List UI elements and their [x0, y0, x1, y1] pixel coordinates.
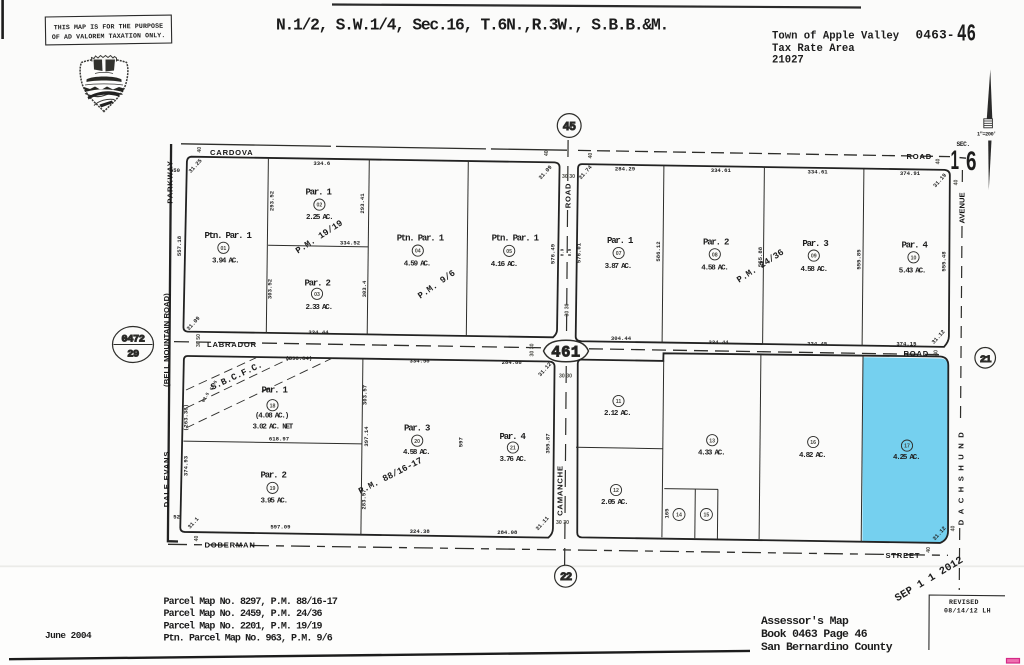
svg-text:DACHSHUND: DACHSHUND: [956, 427, 965, 525]
svg-text:03: 03: [314, 292, 320, 298]
svg-text:June 2004: June 2004: [45, 630, 92, 641]
svg-text:5.43 AC.: 5.43 AC.: [899, 267, 925, 275]
svg-text:334.44: 334.44: [709, 339, 730, 346]
svg-text:52: 52: [173, 514, 180, 521]
svg-text:40: 40: [935, 159, 941, 165]
svg-text:San Bernardino County: San Bernardino County: [761, 642, 893, 654]
svg-text:ROAD: ROAD: [907, 152, 933, 161]
svg-text:334.61: 334.61: [711, 167, 732, 174]
svg-text:Ptn. Par. 1: Ptn. Par. 1: [205, 231, 253, 241]
svg-text:Par. 3: Par. 3: [802, 239, 828, 249]
svg-text:Ptn. Par. 1: Ptn. Par. 1: [492, 234, 540, 244]
svg-text:30 30: 30 30: [564, 303, 570, 316]
svg-text:Par. 2: Par. 2: [703, 238, 729, 248]
svg-text:303.4: 303.4: [361, 280, 368, 297]
svg-text:Assessor's Map: Assessor's Map: [761, 616, 849, 628]
svg-text:(596.84): (596.84): [285, 355, 312, 362]
svg-text:Book 0463 Page 46: Book 0463 Page 46: [761, 629, 868, 641]
svg-text:397.14: 397.14: [363, 426, 370, 447]
svg-text:Par. 2: Par. 2: [305, 278, 331, 288]
svg-text:20: 20: [414, 439, 420, 445]
svg-text:Par. 1: Par. 1: [607, 236, 634, 246]
svg-text:LABRADOR: LABRADOR: [207, 340, 257, 349]
svg-text:02: 02: [317, 203, 323, 209]
svg-text:Par. 4: Par. 4: [500, 432, 527, 442]
svg-text:Par. 1: Par. 1: [306, 188, 333, 198]
svg-text:30 30: 30 30: [559, 373, 572, 379]
svg-text:30 50: 30 50: [196, 334, 202, 347]
svg-text:303.52: 303.52: [267, 278, 274, 299]
svg-text:2.25 AC.: 2.25 AC.: [306, 214, 332, 222]
svg-text:284.08: 284.08: [497, 529, 518, 536]
svg-text:22: 22: [560, 572, 572, 584]
svg-text:40: 40: [194, 536, 200, 542]
svg-text:2.33 AC.: 2.33 AC.: [306, 304, 332, 312]
svg-text:555.48: 555.48: [941, 251, 948, 272]
svg-text:Par. 1: Par. 1: [262, 385, 289, 395]
svg-text:(263.38): (263.38): [182, 404, 189, 431]
svg-text:Parcel Map No. 8297, P.M. 88/1: Parcel Map No. 8297, P.M. 88/16-17: [164, 596, 338, 608]
svg-text:09: 09: [811, 254, 817, 260]
svg-text:557.18: 557.18: [176, 235, 183, 256]
svg-text:45: 45: [563, 121, 576, 134]
svg-text:11: 11: [616, 399, 622, 405]
svg-text:2.12 AC.: 2.12 AC.: [604, 410, 630, 418]
svg-text:324.38: 324.38: [410, 528, 431, 535]
svg-text:334.58: 334.58: [410, 357, 431, 364]
svg-text:Parcel Map No. 2201, P.M. 19/1: Parcel Map No. 2201, P.M. 19/19: [164, 620, 323, 632]
svg-text:4.58 AC.: 4.58 AC.: [801, 266, 827, 274]
svg-text:07: 07: [616, 251, 622, 257]
svg-text:30 30: 30 30: [562, 174, 575, 180]
svg-text:Par. 4: Par. 4: [902, 241, 929, 251]
svg-text:40: 40: [588, 153, 594, 159]
svg-text:14: 14: [676, 513, 682, 519]
svg-text:650: 650: [170, 167, 181, 174]
svg-text:08: 08: [712, 252, 718, 258]
svg-text:618.97: 618.97: [269, 435, 289, 442]
svg-text:576.49: 576.49: [550, 243, 557, 264]
svg-text:303.57: 303.57: [362, 385, 369, 405]
svg-text:REVISED: REVISED: [949, 599, 979, 606]
svg-text:18: 18: [270, 403, 276, 409]
svg-text:374.15: 374.15: [896, 340, 917, 347]
svg-text:DOBERMAN: DOBERMAN: [205, 541, 256, 550]
svg-text:3.76 AC.: 3.76 AC.: [500, 456, 526, 464]
svg-text:165: 165: [663, 508, 670, 519]
svg-text:Ptn. Parcel Map No. 963, P.M.: Ptn. Parcel Map No. 963, P.M. 9/6: [164, 633, 333, 645]
svg-text:1"=200': 1"=200': [977, 132, 996, 138]
svg-text:Tax Rate Area: Tax Rate Area: [772, 43, 855, 55]
svg-text:21027: 21027: [772, 55, 804, 67]
svg-text:3.02 AC. NET: 3.02 AC. NET: [253, 424, 294, 432]
svg-text:1: 1: [951, 145, 960, 175]
svg-text:30 30: 30 30: [556, 520, 569, 526]
svg-text:284.29: 284.29: [615, 165, 636, 172]
svg-text:555.85: 555.85: [856, 249, 863, 270]
svg-text:40: 40: [197, 147, 203, 153]
svg-text:21: 21: [510, 446, 516, 452]
svg-text:10: 10: [911, 255, 917, 261]
svg-text:4.16 AC.: 4.16 AC.: [491, 261, 517, 269]
svg-text:Ptn. Par. 1: Ptn. Par. 1: [397, 233, 445, 243]
svg-text:0.9: 0.9: [569, 248, 573, 256]
svg-text:Town of Apple Valley: Town of Apple Valley: [772, 31, 900, 43]
svg-text:284.88: 284.88: [502, 359, 523, 366]
svg-text:CAMANCHE: CAMANCHE: [556, 465, 565, 516]
svg-text:Parcel Map No. 2459, P.M. 24/3: Parcel Map No. 2459, P.M. 24/36: [164, 608, 323, 620]
svg-text:334.44: 334.44: [308, 329, 329, 336]
svg-text:283.57: 283.57: [360, 489, 367, 509]
svg-text:304.44: 304.44: [611, 335, 632, 342]
svg-text:3.94 AC.: 3.94 AC.: [212, 257, 238, 265]
svg-text:334.52: 334.52: [340, 240, 361, 247]
svg-text:4.59 AC.: 4.59 AC.: [404, 261, 430, 269]
svg-text:CARDOVA: CARDOVA: [210, 148, 253, 157]
svg-text:21: 21: [980, 354, 991, 366]
svg-text:19: 19: [270, 486, 276, 492]
svg-text:40: 40: [950, 526, 956, 532]
svg-text:05: 05: [506, 249, 512, 255]
svg-text:334.6: 334.6: [313, 160, 330, 167]
svg-text:4.58 AC.: 4.58 AC.: [701, 265, 727, 273]
svg-text:374.93: 374.93: [182, 455, 189, 476]
svg-text:30 30: 30 30: [530, 343, 536, 356]
svg-text:576.01: 576.01: [576, 242, 583, 263]
svg-text:597: 597: [458, 437, 465, 447]
svg-text:3.95 AC.: 3.95 AC.: [261, 498, 287, 506]
svg-text:01: 01: [221, 246, 227, 252]
svg-text:40: 40: [934, 350, 940, 356]
svg-text:46: 46: [957, 22, 976, 49]
svg-text:DALE EVANS: DALE EVANS: [162, 451, 171, 507]
svg-text:Par. 2: Par. 2: [261, 471, 287, 481]
svg-text:2.05 AC.: 2.05 AC.: [601, 499, 627, 507]
svg-text:N.1/2, S.W.1/4, Sec.16, T.6N.,: N.1/2, S.W.1/4, Sec.16, T.6N.,R.3W., S.B…: [276, 17, 668, 36]
svg-text:0.9: 0.9: [562, 248, 566, 256]
svg-text:461: 461: [551, 343, 580, 361]
svg-text:6: 6: [966, 146, 977, 176]
svg-text:(BELL MOUNTAIN ROAD): (BELL MOUNTAIN ROAD): [162, 293, 171, 387]
svg-text:AVENUE: AVENUE: [957, 192, 966, 223]
svg-text:(4.08 AC.): (4.08 AC.): [255, 413, 289, 421]
svg-text:40: 40: [953, 180, 959, 186]
svg-text:4.33 AC.: 4.33 AC.: [698, 450, 724, 458]
svg-text:374.91: 374.91: [900, 170, 921, 177]
svg-text:Par. 3: Par. 3: [404, 424, 430, 434]
svg-text:293.52: 293.52: [269, 190, 276, 211]
svg-text:08/14/12 LH: 08/14/12 LH: [944, 607, 991, 614]
svg-text:4.82 AC.: 4.82 AC.: [799, 452, 825, 460]
svg-text:04: 04: [415, 249, 421, 255]
svg-text:16: 16: [810, 440, 816, 446]
svg-text:586.12: 586.12: [655, 241, 662, 262]
svg-text:4.58 AC.: 4.58 AC.: [403, 449, 429, 457]
svg-text:13: 13: [709, 438, 715, 444]
svg-text:40: 40: [544, 150, 550, 156]
svg-text:17: 17: [904, 444, 910, 450]
svg-text:15: 15: [704, 513, 710, 519]
svg-text:0463-: 0463-: [916, 29, 955, 43]
svg-text:555.88: 555.88: [757, 246, 764, 267]
svg-text:334.45: 334.45: [807, 340, 828, 347]
svg-text:334.61: 334.61: [808, 168, 829, 175]
svg-text:597.09: 597.09: [270, 523, 291, 530]
svg-text:40: 40: [926, 547, 932, 553]
svg-text:3.87 AC.: 3.87 AC.: [605, 263, 631, 271]
svg-text:29: 29: [127, 349, 139, 361]
svg-text:4.25 AC.: 4.25 AC.: [893, 454, 919, 462]
svg-text:ROAD: ROAD: [564, 183, 573, 209]
svg-text:355.87: 355.87: [545, 433, 552, 453]
svg-text:12: 12: [613, 488, 619, 494]
svg-text:STREET: STREET: [886, 551, 921, 560]
svg-text:293.41: 293.41: [359, 193, 366, 214]
svg-text:0472: 0472: [121, 334, 144, 346]
